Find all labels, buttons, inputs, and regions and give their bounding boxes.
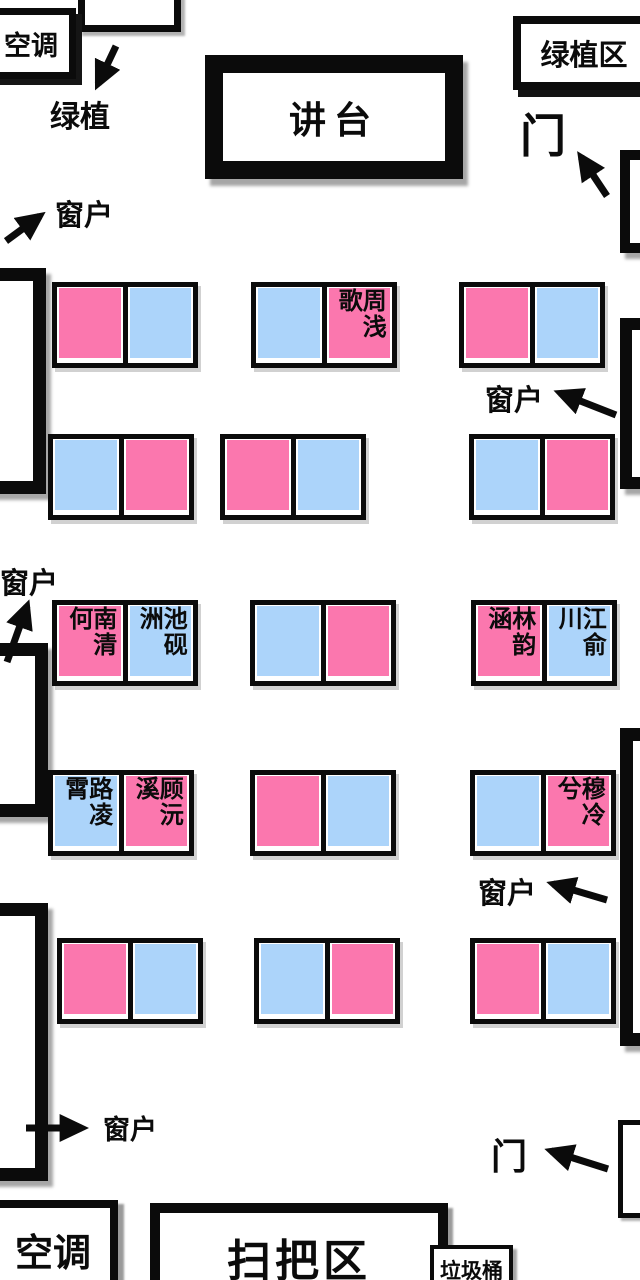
window-frame-left-3 [0, 903, 48, 1181]
desk-divider [119, 439, 124, 515]
seat-blue [55, 440, 117, 510]
window-frame-right-2 [620, 728, 640, 1046]
top-partial-box [78, 0, 181, 32]
podium: 讲台 [205, 55, 463, 179]
seat-pink [477, 944, 539, 1014]
desk-divider [123, 605, 128, 681]
seat-blue [476, 440, 538, 510]
student-name: 林韵涵 [485, 606, 533, 676]
window-label-top-left: 窗户 [55, 192, 113, 234]
desk-r5c2 [254, 938, 400, 1024]
arrow-to-greenery [98, 46, 116, 84]
arrow-to-window-top-left [6, 216, 40, 241]
arrow-to-window-right-row1 [560, 393, 616, 415]
desk-divider [540, 439, 545, 515]
seat-pink [547, 440, 609, 510]
seat-pink-named: 顾沅溪 [126, 776, 188, 846]
desk-r1c3 [459, 282, 605, 368]
desk-divider [542, 605, 547, 681]
desk-r4c1: 路凌霄顾沅溪 [48, 770, 194, 856]
window-label-bottom-left: 窗户 [103, 1108, 157, 1147]
window-label-right-row4: 窗户 [478, 870, 536, 912]
seat-blue [298, 440, 360, 510]
window-frame-left-2 [0, 643, 48, 817]
desk-divider [321, 605, 326, 681]
desk-divider [325, 943, 330, 1019]
seat-pink [332, 944, 394, 1014]
seat-pink-named: 林韵涵 [478, 606, 540, 676]
student-name: 穆冷兮 [554, 776, 602, 846]
student-name: 路凌霄 [62, 776, 110, 846]
desk-r3c3: 林韵涵江俞川 [471, 600, 617, 686]
air-conditioner-bottom-label: 空调 [15, 1222, 91, 1277]
seat-blue [537, 288, 599, 358]
desk-divider [530, 287, 535, 363]
desk-r3c2 [250, 600, 396, 686]
seat-blue [135, 944, 197, 1014]
seat-pink [466, 288, 528, 358]
seat-blue-named: 路凌霄 [55, 776, 117, 846]
door-frame-top-right [620, 150, 640, 253]
seat-blue [258, 288, 320, 358]
desk-r1c1 [52, 282, 198, 368]
seat-blue [328, 776, 390, 846]
door-label-bottom: 门 [491, 1128, 527, 1180]
air-conditioner-top: 空调 [0, 8, 76, 79]
classroom-seating-chart: 空调 讲台 绿植区 空调 扫把区 垃圾桶 绿植 窗户 窗户 窗户 窗户 窗户 门… [0, 0, 640, 1280]
student-name: 池砚洲 [136, 606, 184, 676]
seat-pink [59, 288, 121, 358]
desk-r2c2 [220, 434, 366, 520]
student-name: 周浅歌 [335, 288, 383, 358]
window-label-mid-left: 窗户 [0, 560, 58, 602]
trash-bin: 垃圾桶 [430, 1245, 513, 1280]
seat-blue [261, 944, 323, 1014]
desk-r2c1 [48, 434, 194, 520]
trash-bin-label: 垃圾桶 [440, 1255, 503, 1280]
greenery-area: 绿植区 [513, 16, 640, 90]
window-frame-right-1 [620, 318, 640, 489]
seat-blue [548, 944, 610, 1014]
student-name: 江俞川 [555, 606, 603, 676]
door-frame-bottom-right [618, 1120, 640, 1218]
desk-divider [541, 775, 546, 851]
student-name: 顾沅溪 [132, 776, 180, 846]
seat-blue-named: 池砚洲 [130, 606, 192, 676]
seat-pink [328, 606, 390, 676]
desk-divider [128, 943, 133, 1019]
seat-pink-named: 南清何 [59, 606, 121, 676]
desk-divider [321, 775, 326, 851]
air-conditioner-bottom: 空调 [0, 1200, 118, 1280]
broom-area: 扫把区 [150, 1203, 448, 1280]
desk-r3c1: 南清何池砚洲 [52, 600, 198, 686]
arrow-to-window-right-row4 [553, 884, 607, 900]
arrow-to-door-top [581, 157, 607, 196]
seat-pink-named: 穆冷兮 [548, 776, 610, 846]
window-label-right-row1: 窗户 [485, 377, 543, 419]
arrow-to-door-bottom [551, 1151, 608, 1169]
seat-blue [257, 606, 319, 676]
seat-pink-named: 周浅歌 [329, 288, 391, 358]
seat-pink [257, 776, 319, 846]
desk-r2c3 [469, 434, 615, 520]
desk-r4c3: 穆冷兮 [470, 770, 616, 856]
desk-divider [123, 287, 128, 363]
seat-blue-named: 江俞川 [549, 606, 611, 676]
greenery-label: 绿植 [50, 92, 110, 136]
air-conditioner-top-label: 空调 [4, 24, 58, 63]
desk-divider [119, 775, 124, 851]
desk-r1c2: 周浅歌 [251, 282, 397, 368]
door-label-top: 门 [520, 100, 566, 166]
seat-blue [130, 288, 192, 358]
student-name: 南清何 [66, 606, 114, 676]
seat-pink [64, 944, 126, 1014]
greenery-area-label: 绿植区 [540, 32, 627, 74]
desk-divider [541, 943, 546, 1019]
desk-r5c3 [470, 938, 616, 1024]
seat-blue [477, 776, 539, 846]
desk-r4c2 [250, 770, 396, 856]
seat-pink [227, 440, 289, 510]
desk-divider [322, 287, 327, 363]
desk-divider [291, 439, 296, 515]
broom-area-label: 扫把区 [227, 1225, 371, 1280]
window-frame-left-1 [0, 268, 46, 494]
podium-label: 讲台 [289, 90, 379, 144]
seat-pink [126, 440, 188, 510]
desk-r5c1 [57, 938, 203, 1024]
